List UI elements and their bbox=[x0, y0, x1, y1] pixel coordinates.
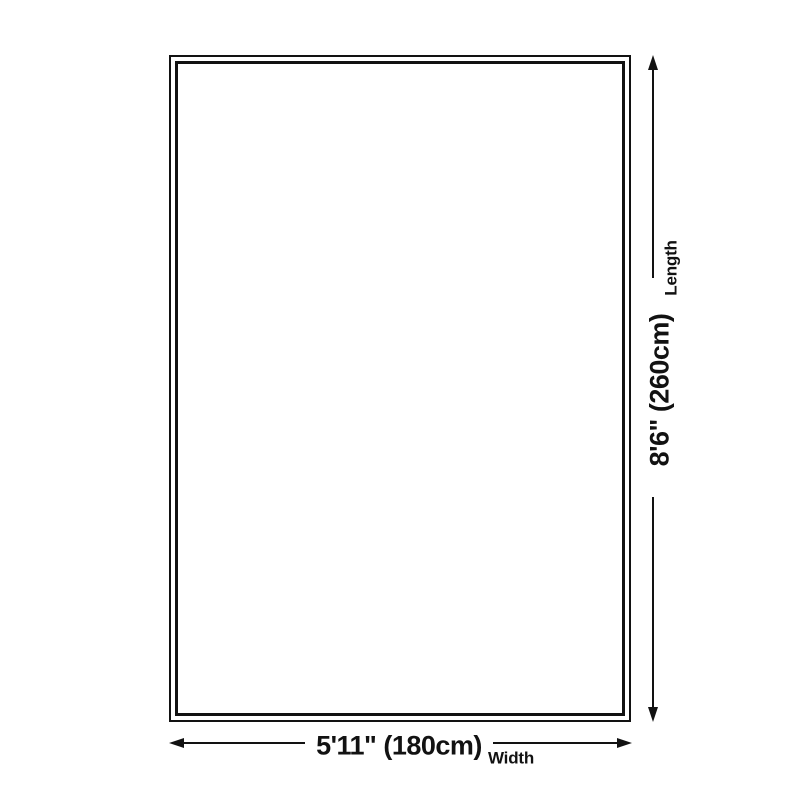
rug-size-diagram: Length 8'6" (260cm) 5'11" (180cm) Width bbox=[0, 0, 800, 800]
rug-inner-border bbox=[175, 61, 625, 716]
arrowhead-down-icon bbox=[648, 707, 658, 722]
rug-outer-border bbox=[169, 55, 631, 722]
width-axis-label: Width bbox=[488, 750, 534, 767]
arrowhead-right-icon bbox=[617, 738, 632, 748]
length-dimension-line-top bbox=[652, 68, 654, 278]
width-dimension-line-left bbox=[182, 742, 305, 744]
length-dimension-line-bottom bbox=[652, 497, 654, 708]
length-axis-label: Length bbox=[663, 240, 680, 295]
width-dimension-line-right bbox=[493, 742, 618, 744]
length-value-label: 8'6" (260cm) bbox=[647, 314, 674, 467]
width-value-label: 5'11" (180cm) bbox=[316, 733, 482, 760]
